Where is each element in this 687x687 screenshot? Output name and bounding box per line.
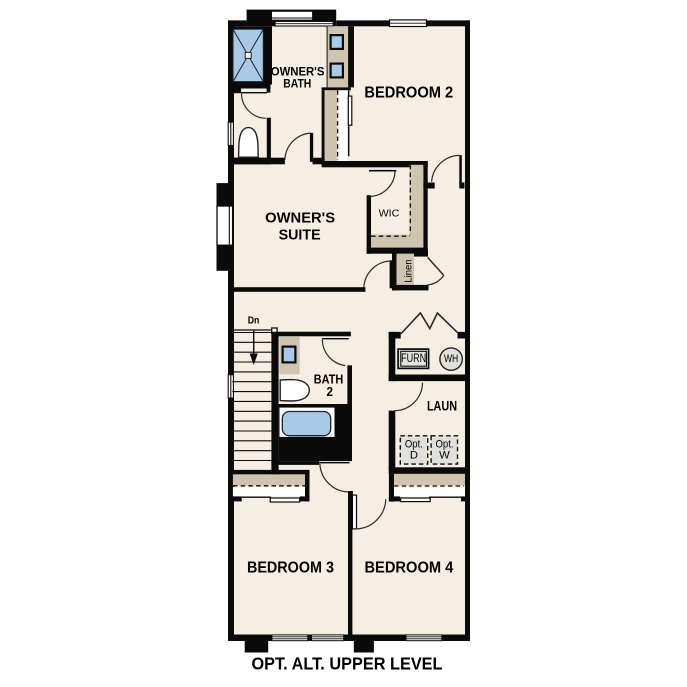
svg-text:OPT. ALT. UPPER LEVEL: OPT. ALT. UPPER LEVEL	[252, 654, 443, 674]
svg-text:OWNER'S: OWNER'S	[265, 209, 335, 226]
svg-text:W: W	[439, 449, 450, 461]
svg-text:Dn: Dn	[248, 316, 260, 327]
svg-text:BEDROOM 2: BEDROOM 2	[364, 84, 453, 101]
svg-text:LAUN: LAUN	[427, 398, 457, 413]
svg-text:BEDROOM 3: BEDROOM 3	[247, 559, 334, 576]
svg-text:WIC: WIC	[379, 209, 400, 220]
svg-text:BEDROOM 4: BEDROOM 4	[364, 560, 453, 577]
svg-text:SUITE: SUITE	[279, 227, 321, 244]
svg-text:WH: WH	[444, 353, 458, 365]
svg-text:FURN: FURN	[401, 351, 426, 365]
svg-text:D: D	[410, 449, 418, 461]
svg-text:Linen: Linen	[403, 259, 414, 282]
svg-text:BATH: BATH	[283, 77, 311, 91]
svg-text:2: 2	[327, 384, 334, 399]
